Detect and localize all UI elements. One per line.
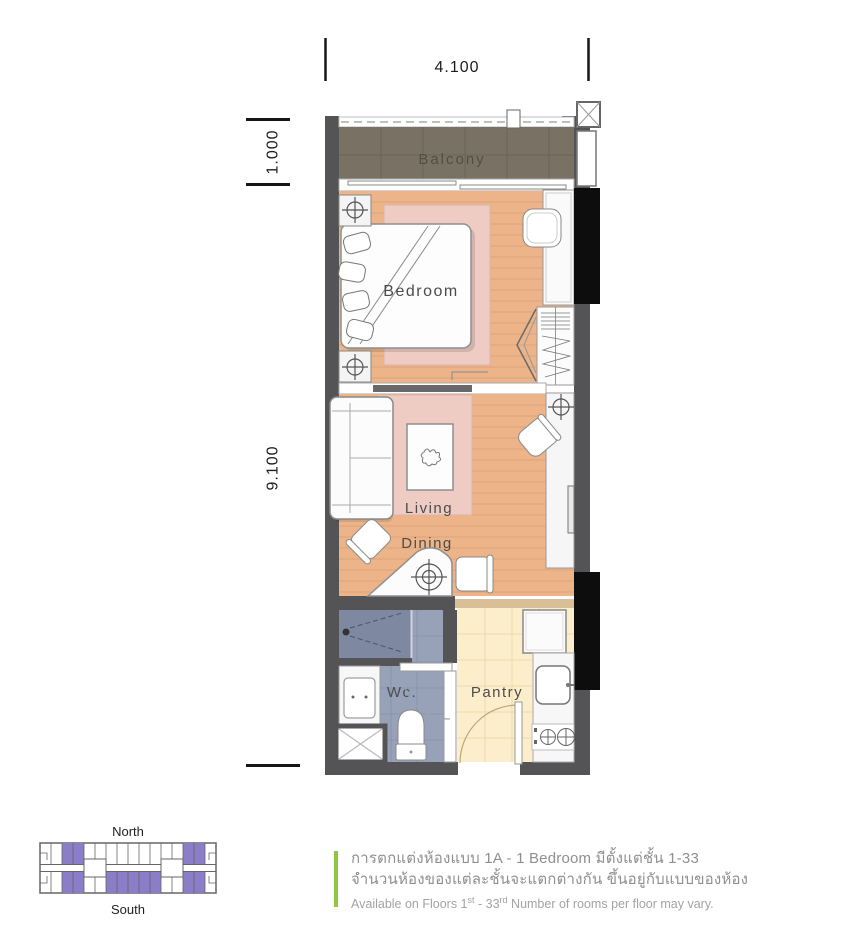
note-line-1: การตกแต่งห้องแบบ 1A - 1 Bedroom มีตั้งแต…	[351, 848, 748, 869]
entrance-door-leaf	[515, 702, 522, 764]
nightstand-bottom	[339, 351, 371, 382]
living-label: Living	[405, 500, 453, 517]
sliding-door-panel	[348, 181, 456, 185]
note-line-3-sup2: rd	[500, 895, 508, 905]
note-line-3-prefix: Available on Floors 1	[351, 897, 468, 911]
column-marker-icon	[577, 102, 600, 127]
divider-lower	[444, 671, 456, 762]
balcony-side-slot	[577, 131, 596, 186]
dimension-top-width: 4.100	[326, 38, 589, 81]
keyplan-building	[26, 840, 230, 897]
floor-plan-drawing: 4.100 1.000 9.100 Balcony	[0, 0, 850, 820]
kitchen-sink	[536, 666, 574, 704]
toilet	[396, 710, 426, 760]
keyplan-unit-highlight	[106, 872, 161, 894]
sliding-door-balcony	[339, 179, 574, 191]
shower-head-icon	[343, 629, 350, 636]
keyplan: North South	[26, 824, 230, 918]
railing-post-marker	[507, 110, 520, 128]
wc-label: Wc.	[387, 684, 417, 701]
sofa	[330, 397, 393, 522]
dimension-top-width-label: 4.100	[434, 59, 479, 76]
note-line-3-suffix: Number of rooms per floor may vary.	[508, 897, 714, 911]
dining-chair-right	[456, 555, 493, 593]
note-line-3: Available on Floors 1st - 33rd Number of…	[351, 890, 748, 914]
tv	[568, 486, 574, 533]
dimension-unit-length: 9.100	[246, 445, 300, 765]
wc: Wc.	[336, 610, 444, 762]
dimension-balcony-depth-label: 1.000	[265, 129, 282, 174]
fridge	[523, 610, 566, 653]
keyplan-core	[161, 859, 183, 877]
sliding-door-panel	[373, 385, 472, 392]
keyplan-core	[84, 859, 106, 877]
wc-sink	[339, 666, 380, 730]
bedroom-label: Bedroom	[383, 283, 458, 300]
living-dining: Living Dining	[330, 393, 574, 596]
keyplan-north-label: North	[26, 824, 230, 840]
shower-area	[339, 610, 412, 666]
entrance-opening	[458, 762, 520, 775]
pantry-top-edge	[455, 599, 574, 608]
nightstand-top	[339, 195, 371, 226]
structural-column-top	[574, 188, 600, 304]
accent-bar	[334, 851, 338, 907]
coffee-table	[407, 424, 453, 490]
stove	[532, 724, 575, 750]
wc-door-leaf	[400, 663, 452, 671]
desk-counter	[546, 393, 574, 568]
floor-plan-page: 4.100 1.000 9.100 Balcony	[0, 0, 850, 940]
note-line-3-sup1: st	[468, 895, 475, 905]
note-line-3-mid: - 33	[475, 897, 500, 911]
balcony: Balcony	[339, 102, 600, 186]
structural-column-bottom	[574, 572, 600, 690]
bedroom-stool	[523, 209, 561, 247]
dimension-unit-length-label: 9.100	[265, 445, 282, 490]
service-shaft	[336, 726, 385, 762]
bedroom: Bedroom	[338, 190, 574, 385]
pantry-label: Pantry	[471, 684, 523, 701]
balcony-label: Balcony	[418, 151, 485, 168]
sliding-door-panel	[460, 185, 566, 189]
notes: การตกแต่งห้องแบบ 1A - 1 Bedroom มีตั้งแต…	[334, 848, 748, 914]
note-line-2: จำนวนห้องของแต่ละชั้นจะแตกต่างกัน ขึ้นอย…	[351, 869, 748, 890]
keyplan-south-label: South	[26, 902, 230, 918]
dimension-balcony-depth: 1.000	[246, 120, 290, 185]
wall-living-wc	[325, 596, 455, 610]
